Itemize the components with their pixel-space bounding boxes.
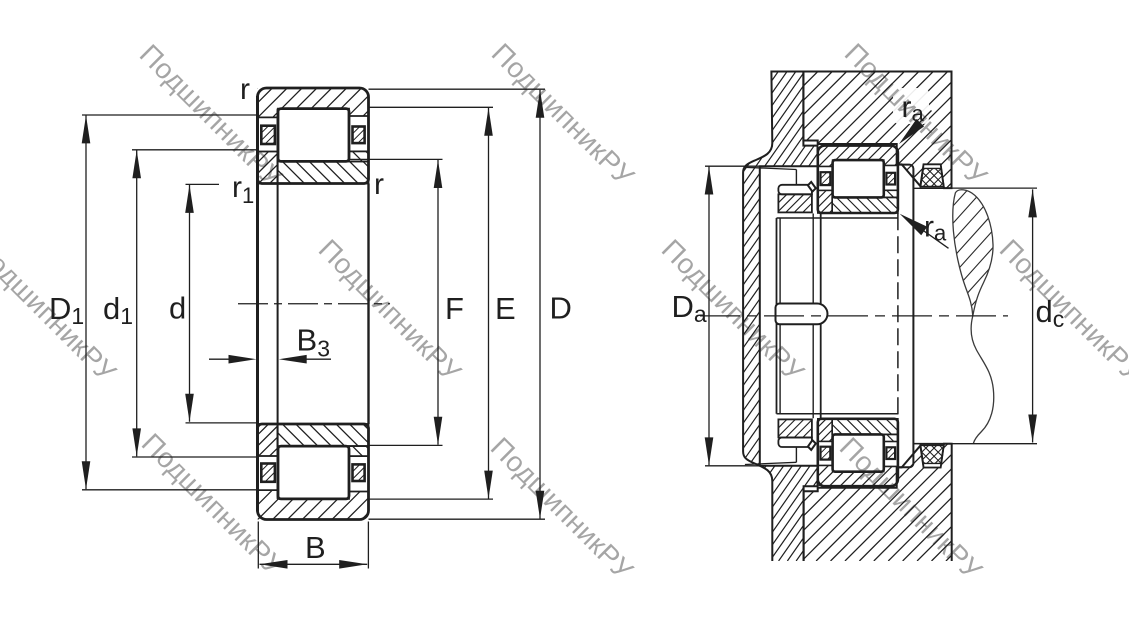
svg-text:r: r: [374, 168, 384, 201]
svg-text:B: B: [305, 530, 326, 565]
svg-text:F: F: [445, 291, 464, 326]
svg-text:D: D: [550, 291, 572, 326]
svg-text:d: d: [169, 291, 186, 326]
svg-text:E: E: [495, 291, 516, 326]
svg-text:r: r: [240, 73, 250, 106]
